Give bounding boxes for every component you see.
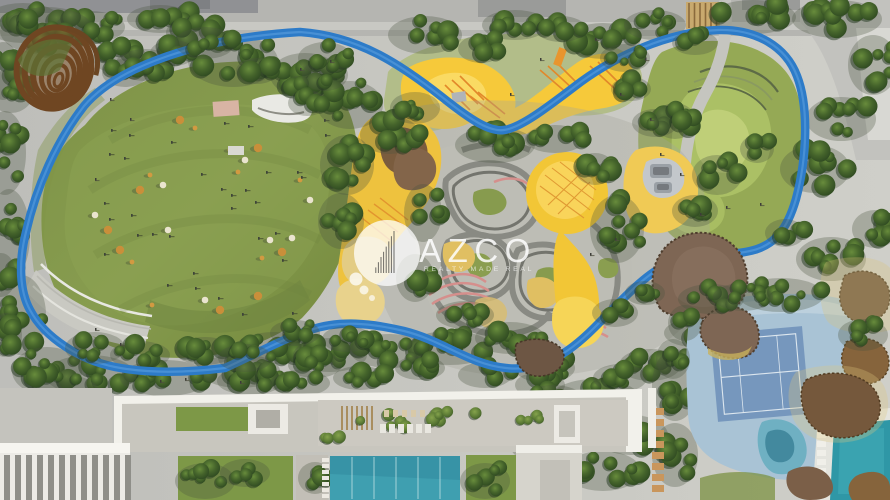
svg-text:REALTY MADE REAL: REALTY MADE REAL [424, 266, 534, 273]
svg-text:AZCO: AZCO [419, 232, 537, 269]
